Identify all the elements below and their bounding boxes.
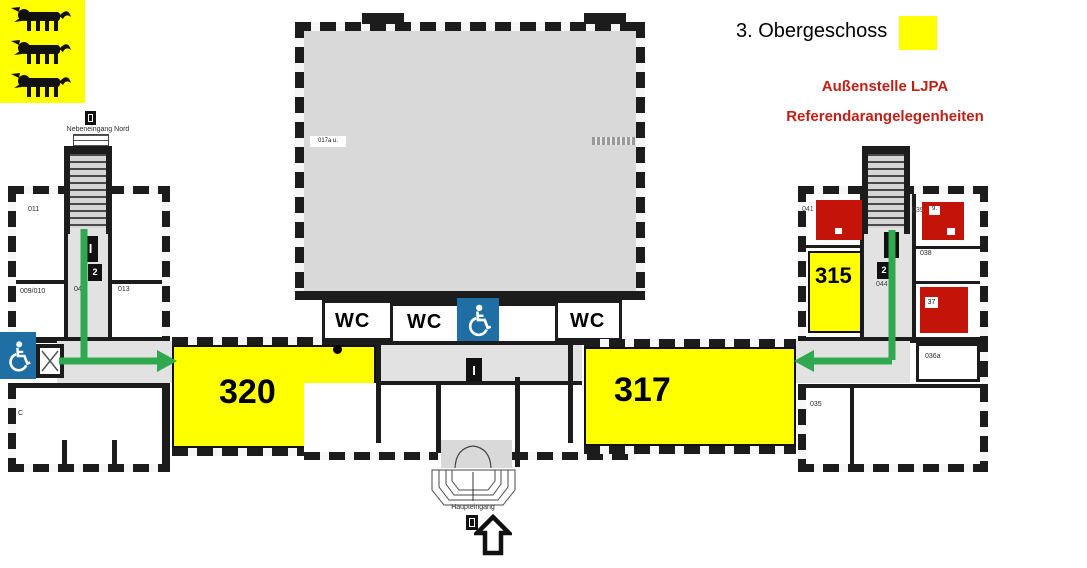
route-arrow-left [59, 229, 177, 372]
plan-overlay [0, 0, 1087, 568]
route-arrow-right [794, 230, 892, 372]
vestibule-door-arcs [455, 446, 491, 468]
floorplan-page: 3. Obergeschoss Außenstelle LJPA Referen… [0, 0, 1087, 568]
